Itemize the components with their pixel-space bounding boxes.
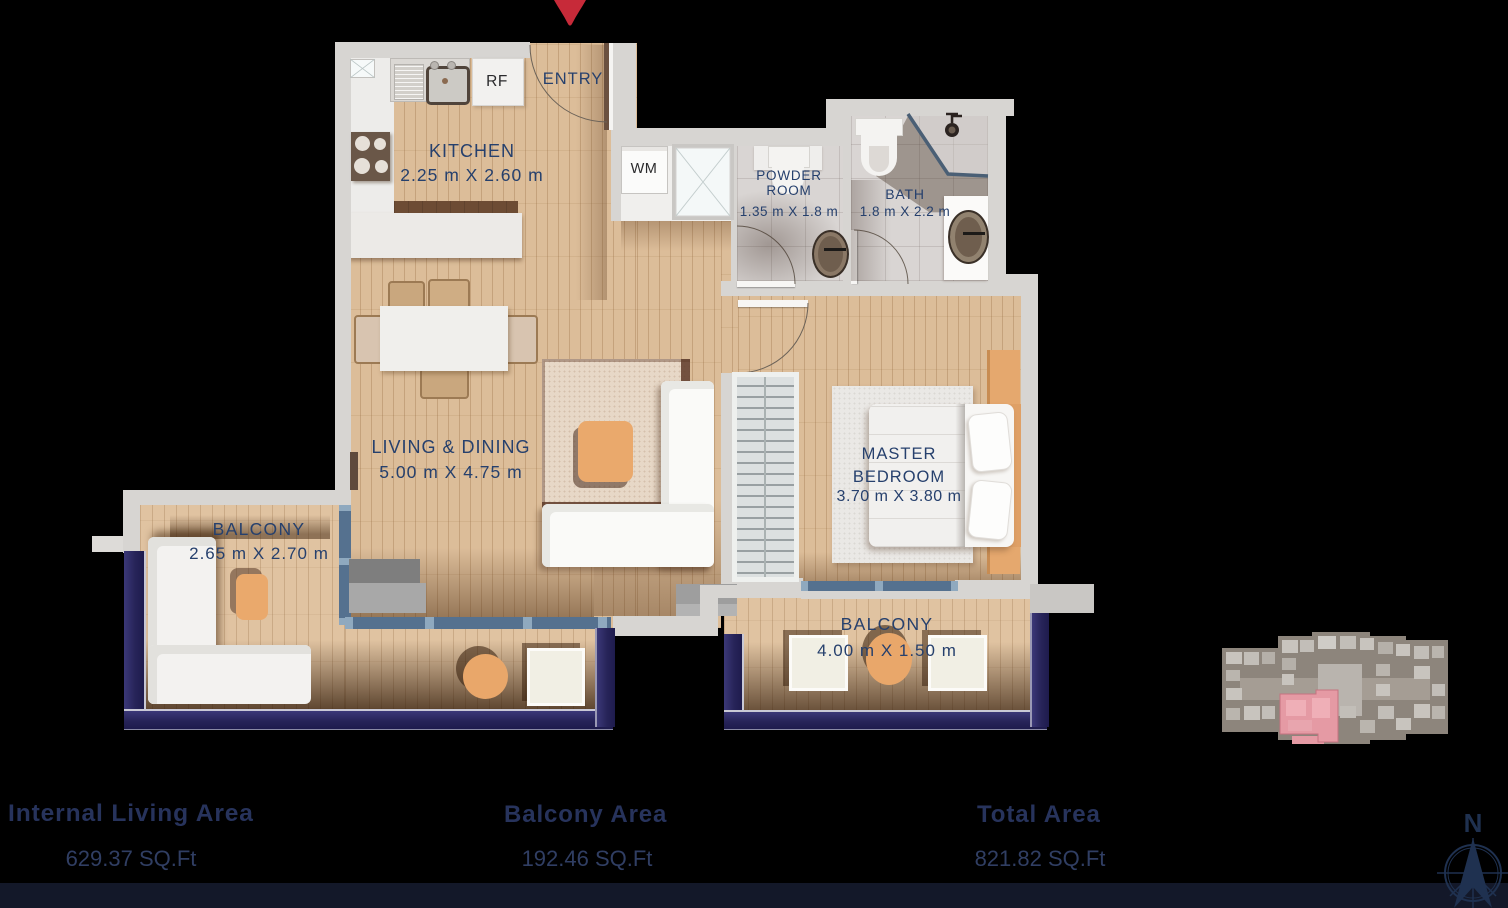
svg-text:N: N [1464,808,1483,838]
